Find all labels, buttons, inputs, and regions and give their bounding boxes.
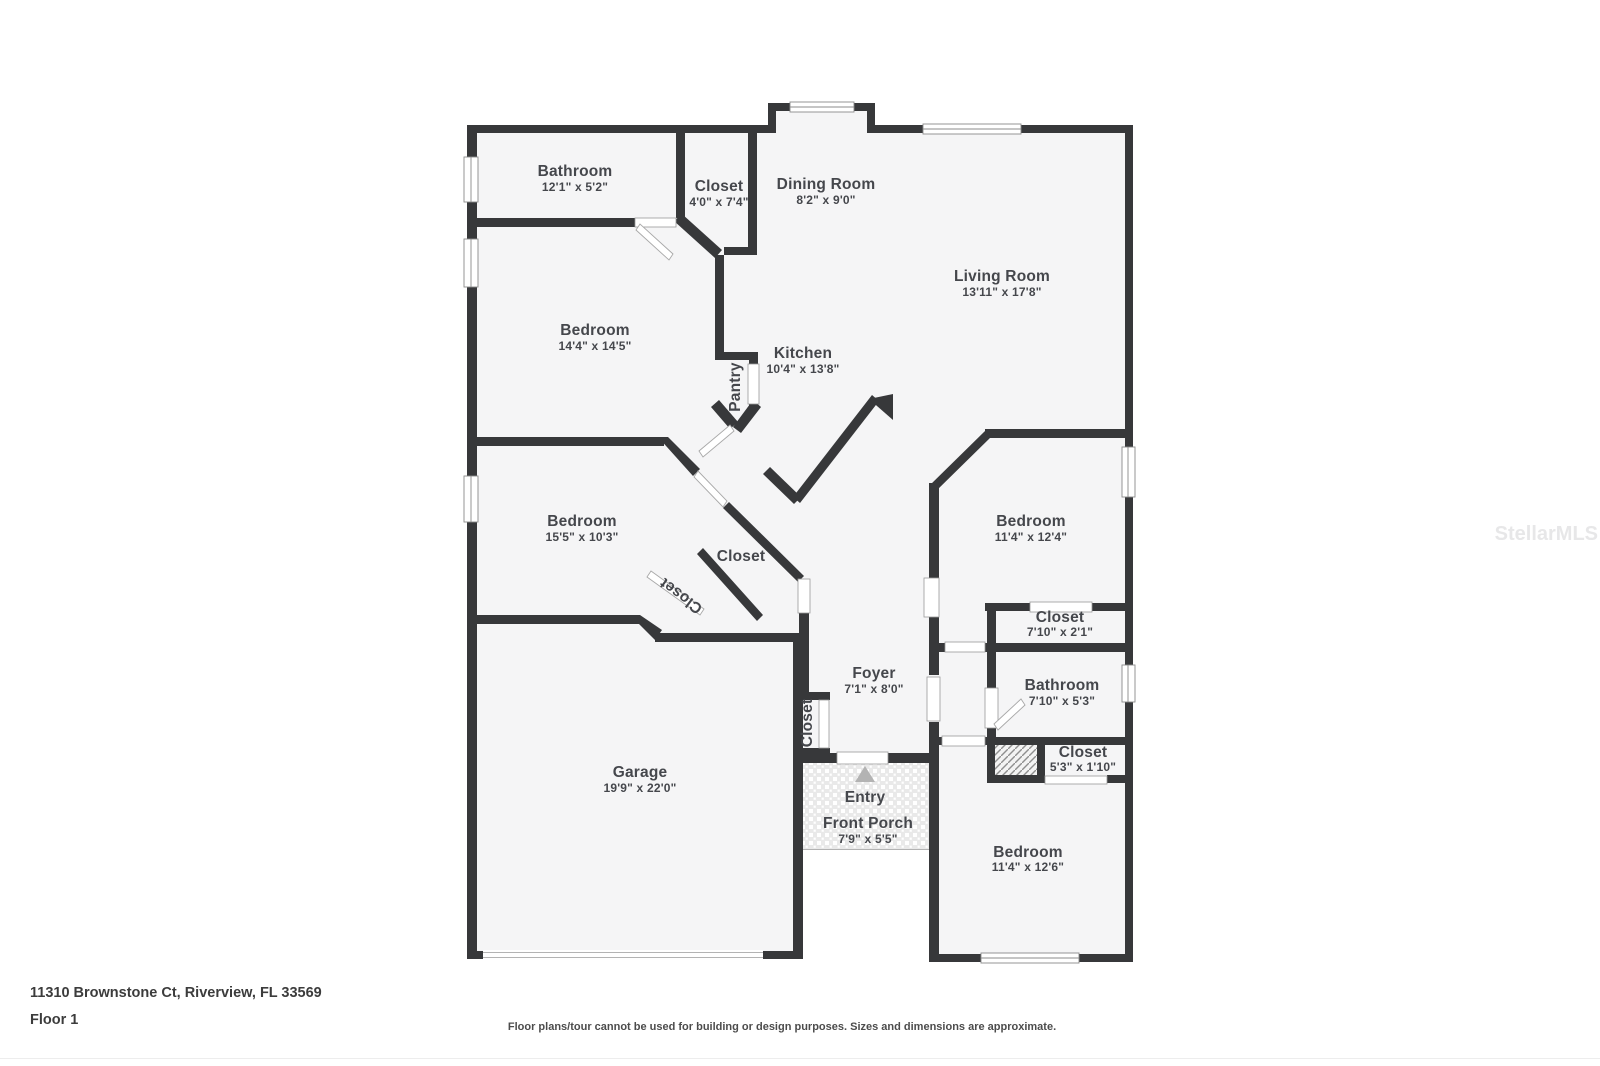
foyer-left-door [798,579,810,613]
wall-bedroom3-top [985,429,1133,438]
room-dims-closet1: 4'0" x 7'4" [689,195,748,209]
wall-kitchen-left [715,255,724,359]
wall-foyer-right-upper [929,483,939,578]
room-label-entry: Entry [845,789,886,806]
room-dims-bathroom1: 12'1" x 5'2" [542,180,608,194]
nook-closet-door [819,700,829,748]
room-label-bedroom4: Bedroom [993,844,1062,861]
window [1122,447,1135,497]
closet3-door [1045,776,1107,784]
wall-bedroom4-left [929,722,939,962]
room-dims-bedroom2: 15'5" x 10'3" [545,530,618,544]
room-label-closet1: Closet [695,178,744,195]
hall-opening [927,677,940,721]
window [790,102,854,112]
stellar-mls-watermark: StellarMLS [1495,523,1598,545]
window [464,157,478,202]
floor-plan-svg: Bathroom 12'1" x 5'2" Closet 4'0" x 7'4"… [0,0,1600,1066]
wall-closet1-left [676,133,685,218]
window [923,124,1021,134]
floor-plan-page: Bathroom 12'1" x 5'2" Closet 4'0" x 7'4"… [0,0,1600,1066]
room-label-closet2: Closet [1036,609,1085,626]
wall-dining-left-stub [724,247,757,255]
footer-disclaimer: Floor plans/tour cannot be used for buil… [508,1021,1056,1033]
wall-dining-left [748,133,757,255]
footer-floor: Floor 1 [30,1012,78,1028]
room-dims-living: 13'11" x 17'8" [962,285,1041,299]
wall-top-left [467,125,776,133]
entry-door-opening [837,752,888,764]
wall-bedroom4-door-stub [929,737,942,745]
room-dims-dining: 8'2" x 9'0" [796,193,855,207]
wall-bathroom1-bottom [467,218,635,227]
room-dims-front-porch: 7'9" x 5'5" [838,832,897,846]
footer-address: 11310 Brownstone Ct, Riverview, FL 33569 [30,985,322,1001]
room-dims-garage: 19'9" x 22'0" [603,781,676,795]
wall-hatch-right [1037,745,1045,783]
room-label-foyer: Foyer [852,665,895,682]
footer: 11310 Brownstone Ct, Riverview, FL 33569… [0,985,1600,1059]
wall-vestibule-stub [929,643,945,652]
window [464,476,478,522]
vestibule-door [945,642,985,652]
room-dims-bedroom3: 11'4" x 12'4" [995,530,1067,544]
room-dims-bathroom2: 7'10" x 5'3" [1029,694,1095,708]
wall-right [1125,125,1133,962]
room-label-pantry: Pantry [727,362,744,412]
room-label-bathroom1: Bathroom [538,163,613,180]
room-dims-kitchen: 10'4" x 13'8" [766,362,839,376]
window [981,953,1079,963]
room-label-closet-nook: Closet [799,699,816,748]
garage-door-opening [483,950,763,960]
room-label-garage: Garage [613,764,668,781]
room-label-bedroom2: Bedroom [547,513,616,530]
wall-bedroom2-bottom [467,615,639,624]
bedroom3-door [924,578,939,617]
bedroom4-door [942,736,985,746]
room-label-kitchen: Kitchen [774,345,832,362]
room-label-bedroom1: Bedroom [560,322,629,339]
room-label-bathroom2: Bathroom [1025,677,1100,694]
room-dims-closet3: 5'3" x 1'10" [1050,760,1116,774]
wall-foyer-left [799,613,809,692]
wall-bump-right [867,103,875,133]
room-label-living: Living Room [954,268,1050,285]
room-label-bedroom3: Bedroom [996,513,1065,530]
wall-garage-top-right [655,633,803,642]
room-label-closet-mid: Closet [717,548,766,565]
window [1122,665,1135,702]
wall-closet3-bottom-corner [1107,775,1133,783]
room-dims-foyer: 7'1" x 8'0" [844,682,903,696]
wall-hatch-bottom [987,775,1045,783]
room-label-closet3: Closet [1059,744,1108,761]
room-label-dining: Dining Room [777,176,876,193]
window [464,239,478,287]
room-dims-closet2: 7'10" x 2'1" [1027,625,1093,639]
wall-bathroom2-top [985,643,1133,652]
pantry-door [748,364,759,404]
utility-closet-hatch [995,745,1037,775]
wall-bedroom1-bottom [467,437,664,446]
room-dims-bedroom1: 14'4" x 14'5" [558,339,631,353]
room-dims-bedroom4: 11'4" x 12'6" [992,860,1064,874]
room-label-front-porch: Front Porch [823,815,913,832]
